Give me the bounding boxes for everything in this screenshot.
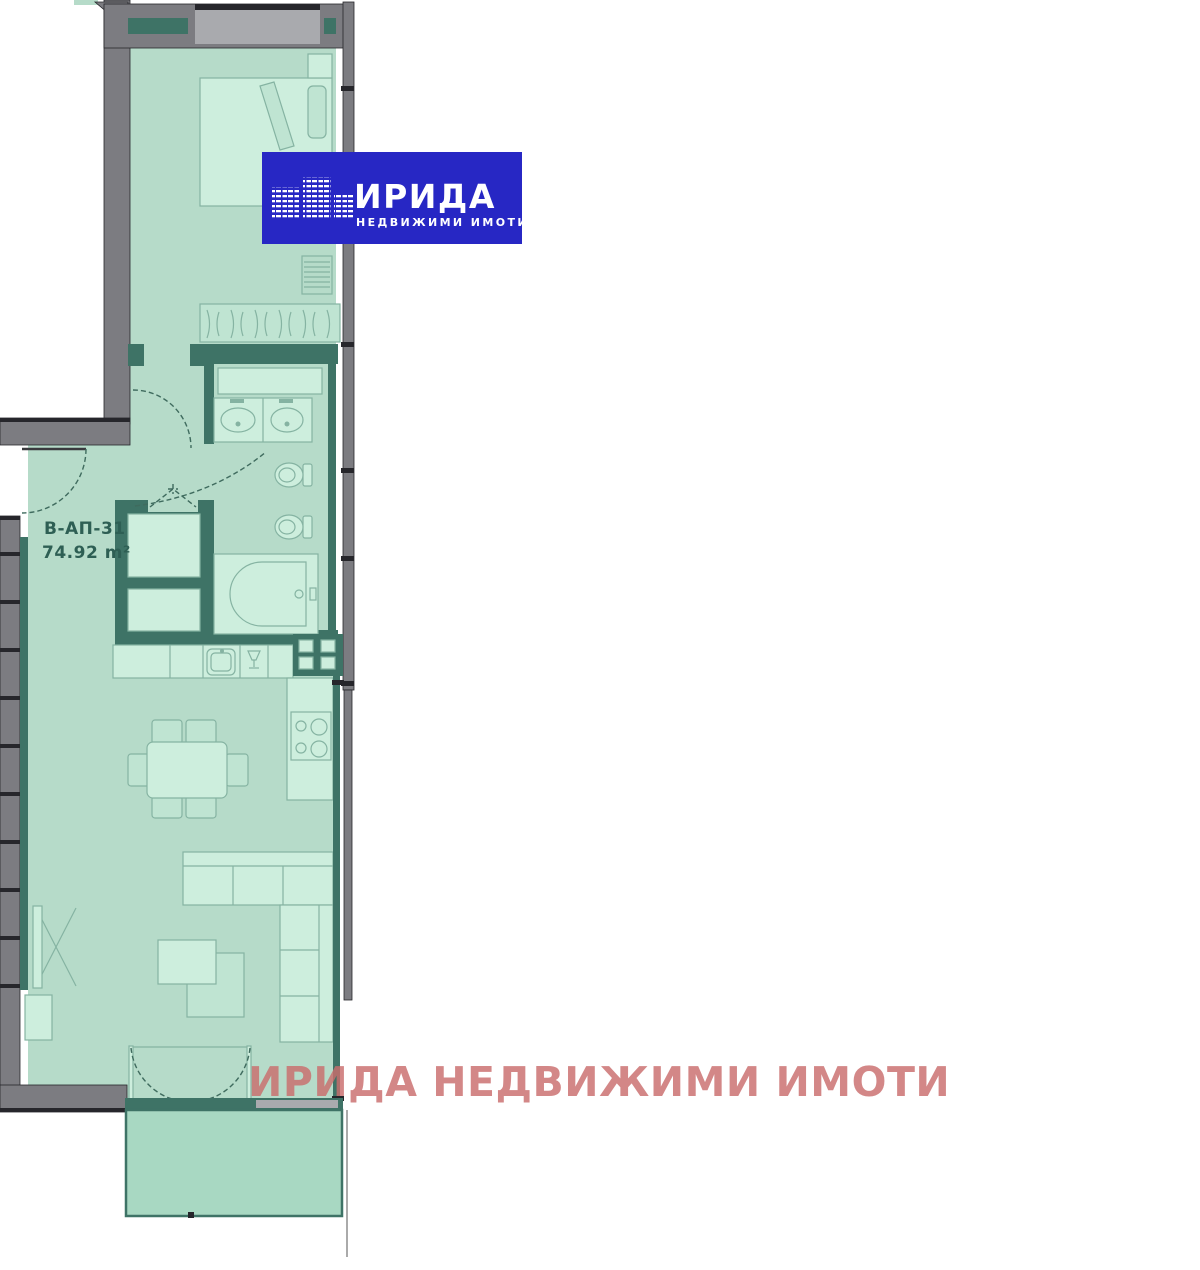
window-top-frame — [195, 4, 320, 10]
bathtub — [214, 554, 318, 634]
unit-area: 74.92 m² — [42, 543, 131, 563]
adjacent-unit — [0, 0, 104, 418]
chair — [226, 754, 248, 786]
closet — [115, 500, 213, 645]
toilet — [275, 463, 312, 487]
wall-entry — [0, 418, 130, 445]
watermark-text: ИРИДА НЕДВИЖИМИ ИМОТИ — [248, 1058, 950, 1106]
kitchen-counter — [113, 645, 293, 678]
wall-niche-right — [324, 18, 336, 34]
dining-table — [147, 742, 227, 798]
wall-left-liner — [20, 537, 28, 990]
chair — [152, 796, 182, 818]
vanity — [214, 398, 312, 442]
floor-plan-page: В-АП-31 74.92 m² ИРИДА НЕДВИЖИМИ ИМОТИ И… — [0, 0, 1200, 1270]
logo-title: ИРИДА — [354, 177, 496, 216]
wall-right-lower — [344, 690, 352, 1000]
wall-niche-left — [128, 18, 188, 34]
kitchen-side-counter — [287, 678, 333, 800]
unit-number: В-АП-31 — [44, 519, 126, 539]
balcony — [126, 1110, 342, 1216]
bath-shelf — [218, 368, 322, 394]
logo-subtitle: НЕДВИЖИМИ ИМОТИ — [356, 216, 529, 229]
glazed-wall-right — [333, 676, 340, 1106]
bathroom-top-wall — [204, 344, 338, 364]
chair — [152, 720, 182, 744]
floor-plan: В-АП-31 74.92 m² ИРИДА НЕДВИЖИМИ ИМОТИ И… — [0, 0, 1200, 1270]
bathroom-right-liner — [328, 364, 336, 636]
cabinet — [25, 995, 52, 1040]
shaft — [293, 634, 343, 676]
pillow — [308, 86, 326, 138]
bathroom-left-wall-upper — [204, 364, 214, 444]
chair — [186, 796, 216, 818]
closet-shelf-top — [128, 514, 200, 577]
chair — [186, 720, 216, 744]
wall-left-bedroom — [104, 0, 130, 424]
coffee-table-1 — [158, 940, 216, 984]
agency-logo: ИРИДА НЕДВИЖИМИ ИМОТИ — [262, 152, 529, 244]
wardrobe — [200, 304, 340, 342]
bidet — [275, 515, 312, 539]
nightstand — [308, 54, 332, 78]
window-top — [195, 10, 320, 44]
wall-bottom-left — [0, 1085, 127, 1112]
closet-shelf-bottom — [128, 589, 200, 631]
